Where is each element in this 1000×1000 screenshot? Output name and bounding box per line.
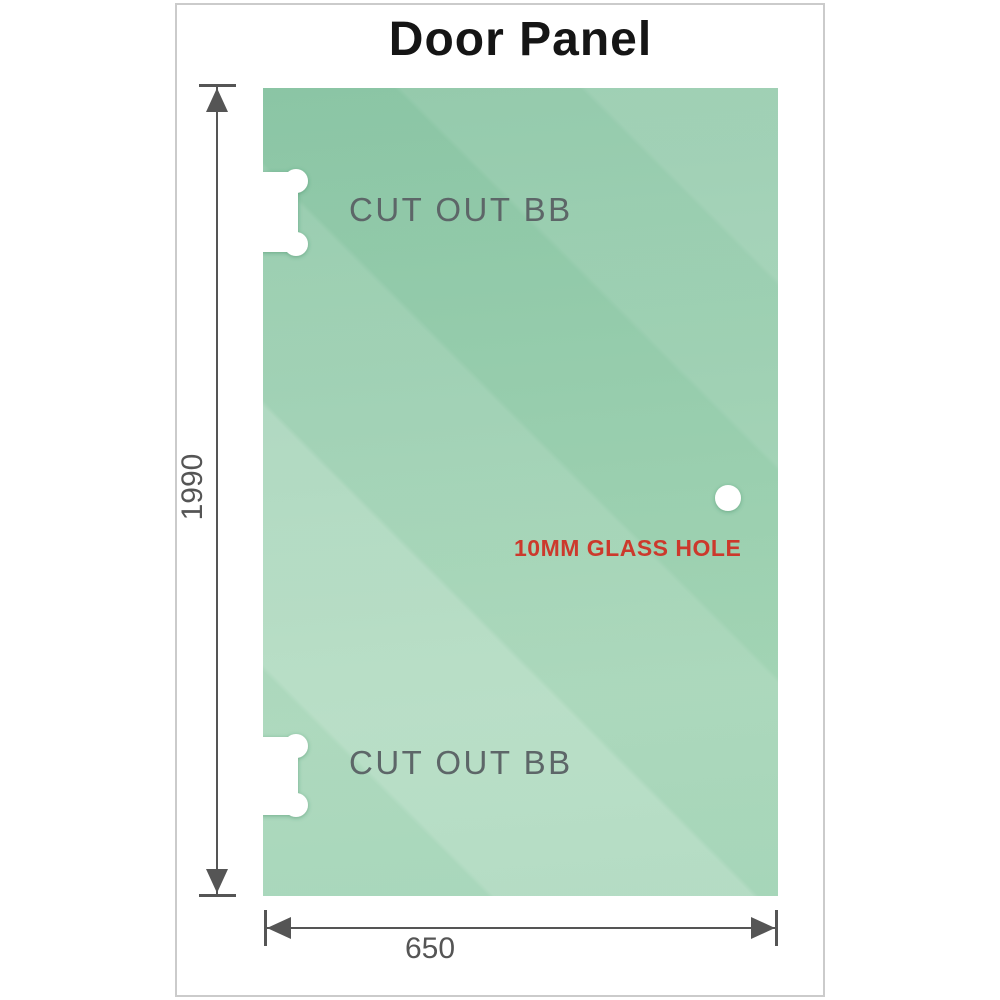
cutout-bottom-label: CUT OUT BB (349, 744, 573, 782)
page-title: Door Panel (263, 12, 778, 67)
hinge-cutout-top (263, 169, 308, 256)
arrow-left-icon (267, 917, 291, 939)
height-dimension-line (216, 86, 218, 896)
glass-hole (715, 485, 741, 511)
arrow-up-icon (206, 88, 228, 112)
hinge-cutout-bottom (263, 734, 308, 817)
width-dimension-cap-right (775, 910, 778, 946)
glass-hole-label: 10MM GLASS HOLE (514, 535, 741, 562)
width-dimension-value: 650 (395, 932, 465, 966)
cutout-top-label: CUT OUT BB (349, 191, 573, 229)
arrow-right-icon (751, 917, 775, 939)
height-dimension-cap-bottom (199, 894, 236, 897)
height-dimension-cap-top (199, 84, 236, 87)
arrow-down-icon (206, 869, 228, 893)
height-dimension-value: 1990 (176, 437, 216, 537)
width-dimension-line (266, 927, 776, 929)
